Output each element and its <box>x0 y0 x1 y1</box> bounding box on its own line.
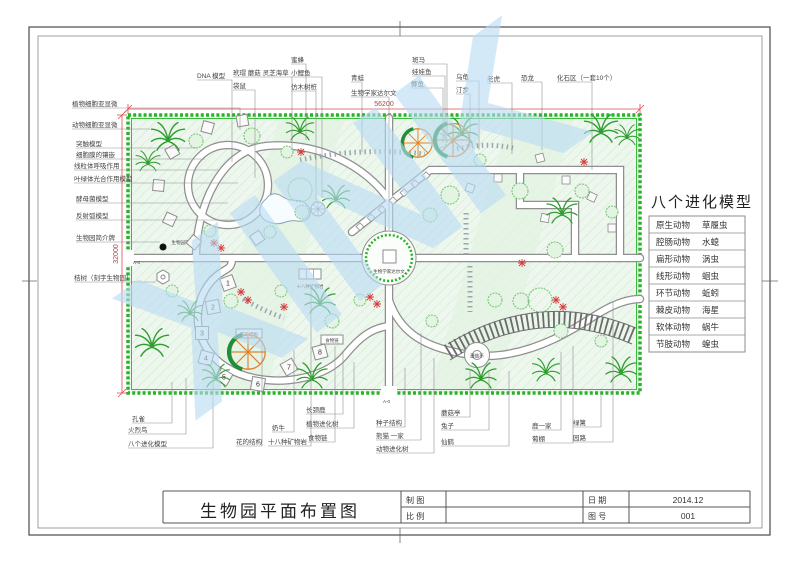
plan-label: 植物细胞亚显微 <box>72 99 118 108</box>
drawing-page: 生物学家达尔文 蘑菇亭 十八种矿物岩 花的结构 食物链 <box>0 0 800 562</box>
plan-label: 八个进化模型 <box>128 439 168 448</box>
drawing-no-label: 图 号 <box>588 512 606 521</box>
plan-label: 种子结构 <box>376 418 403 427</box>
plan-label: 仿木树桩 <box>291 82 318 91</box>
plan-label: 蜜蜂 <box>291 55 305 64</box>
plan-label: 动物细胞亚显微 <box>72 120 118 129</box>
scale-label: 比 例 <box>406 511 424 521</box>
plan-label: 熊猫 一家 <box>376 431 404 440</box>
plan-label: 植物进化树 <box>306 419 339 428</box>
plan-label: 化石区（一套10个） <box>557 73 616 82</box>
plan-label: 鹿一家 <box>532 421 552 430</box>
plan-label: 长颈鹿 <box>306 405 326 414</box>
mushroom-pavilion: 蘑菇亭 <box>465 343 490 368</box>
plan-label: A-0 <box>383 399 391 404</box>
table-cell: 原生动物 <box>656 220 691 230</box>
plan-label: 火烈鸟 <box>128 425 148 434</box>
date-label: 日 期 <box>588 496 606 505</box>
evolution-panel-title: 八个进化模型 <box>651 194 753 211</box>
plan-label: 孔雀 <box>132 414 146 423</box>
evolution-panel: 八个进化模型 原生动物 草履虫 腔肠动物 水螅 扁形动物 涡虫 线形动物 蛔虫 … <box>649 194 753 352</box>
cad-plan-canvas: 生物学家达尔文 蘑菇亭 十八种矿物岩 花的结构 食物链 <box>0 0 800 562</box>
table-cell: 节肢动物 <box>656 339 691 349</box>
table-cell: 蜗牛 <box>702 322 720 332</box>
table-cell: 海星 <box>702 305 719 315</box>
plan-label: 奶牛 <box>272 423 286 432</box>
entrance-bottom <box>381 386 397 398</box>
table-cell: 线形动物 <box>656 271 691 281</box>
plan-label: 线粒体呼吸作用 <box>74 161 120 170</box>
plan-label: 反射弧模型 <box>76 211 109 220</box>
table-cell: 棘皮动物 <box>656 305 691 315</box>
plan-label: 蘑菇亭 <box>470 353 484 360</box>
plan-label: 绿篱 <box>573 418 587 427</box>
plan-label: 突触模型 <box>76 139 103 148</box>
plan-label: 生物园简介牌 <box>76 233 116 242</box>
title-block: 生物园平面布置图 制 图 比 例 日 期 图 号 2014.12 001 <box>163 491 750 523</box>
plan-label: 园路 <box>573 433 587 442</box>
table-cell: 草履虫 <box>702 220 728 230</box>
date-value: 2014.12 <box>673 495 704 505</box>
drawing-title: 生物园平面布置图 <box>200 502 360 521</box>
plan-label: 食物链 <box>308 433 328 442</box>
table-cell: 软体动物 <box>656 322 691 332</box>
plan-label: 叶绿体光合作用模型 <box>74 174 133 183</box>
plan-label: 细胞膜的镶嵌 <box>76 150 116 159</box>
drawing-no-value: 001 <box>681 511 695 521</box>
table-cell: 扁形动物 <box>656 254 691 264</box>
table-cell: 涡虫 <box>702 254 720 264</box>
plan-label: 小鲤鱼 <box>291 68 311 77</box>
plan-label: 酵母菌模型 <box>76 194 109 203</box>
plan-label: 袋鼠 <box>233 81 247 90</box>
plan-label: 仙鹤 <box>441 437 455 446</box>
maker-label: 制 图 <box>406 495 424 505</box>
plan-label: 十八种矿物岩 <box>268 437 308 446</box>
table-cell: 蛔虫 <box>702 271 720 281</box>
plan-label: 葡棚 <box>532 434 546 443</box>
table-cell: 蚯蚓 <box>702 288 719 298</box>
plan-label: 动物进化树 <box>376 444 409 453</box>
plan-label: 玳瑁 蘑菇 灵芝海草 <box>233 68 289 77</box>
table-cell: 环节动物 <box>656 288 691 298</box>
plan-label: 兔子 <box>441 421 455 430</box>
table-cell: 蝗虫 <box>702 339 720 349</box>
plan-label: DNA 模型 <box>197 71 226 80</box>
table-cell: 水螅 <box>702 237 720 247</box>
table-cell: 腔肠动物 <box>656 237 691 247</box>
plan-label: 蘑菇亭 <box>441 408 461 417</box>
